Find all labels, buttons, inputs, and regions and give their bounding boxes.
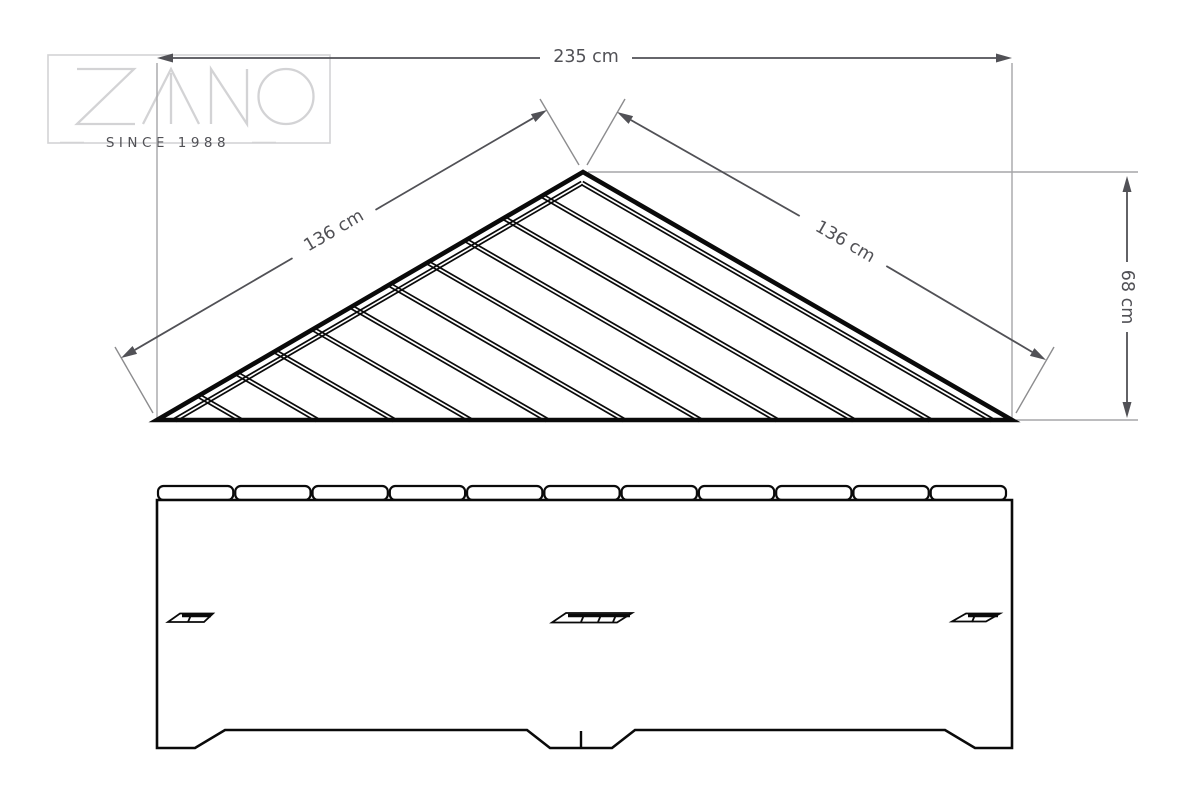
seat-board-end bbox=[544, 486, 619, 500]
dimension-arrowhead bbox=[617, 112, 633, 124]
front-panel-outline bbox=[157, 500, 1012, 748]
dimension-top-width-label: 235 cm bbox=[553, 47, 619, 67]
seat-board-end bbox=[776, 486, 851, 500]
logo-letter bbox=[77, 69, 135, 124]
dimension-arrowhead bbox=[1030, 348, 1046, 360]
dimension-arrowhead bbox=[996, 54, 1012, 63]
seat-board-end bbox=[158, 486, 233, 500]
zano-logo-tagline: SINCE 1988 bbox=[106, 135, 230, 151]
top-view bbox=[157, 172, 1012, 421]
technical-drawing-page: ZANO SINCE 1988 235 cm 136 cm 136 cm 68 … bbox=[0, 0, 1200, 800]
dimension-left-edge-label: 136 cm bbox=[301, 206, 368, 256]
seat-board-end bbox=[622, 486, 697, 500]
dimension-right-edge-label: 136 cm bbox=[812, 217, 879, 267]
seat-board-end bbox=[313, 486, 388, 500]
dimension-arrowhead bbox=[121, 346, 137, 358]
seat-board-end bbox=[853, 486, 928, 500]
dimension-depth-label: 68 cm bbox=[1117, 270, 1137, 325]
logo-letter-o bbox=[259, 69, 314, 124]
dim-136r-line bbox=[631, 120, 800, 216]
dim-136r-line bbox=[886, 266, 1032, 352]
dimension-arrowhead bbox=[531, 110, 547, 122]
dim-136l-line bbox=[135, 258, 293, 350]
seat-board-end bbox=[467, 486, 542, 500]
seat-board-end bbox=[390, 486, 465, 500]
dimension-arrowhead bbox=[1123, 176, 1132, 192]
seat-board-end bbox=[699, 486, 774, 500]
ext-corner-bl bbox=[115, 347, 153, 413]
triangle-face bbox=[157, 172, 1012, 420]
dim-136l-line bbox=[375, 118, 533, 210]
ext-apex-right bbox=[587, 99, 625, 165]
dimension-arrowhead bbox=[1123, 402, 1132, 418]
ext-apex-left bbox=[540, 99, 579, 165]
logo-letter bbox=[211, 69, 247, 124]
seat-board-end bbox=[235, 486, 310, 500]
drawing-canvas: ZANO SINCE 1988 235 cm 136 cm 136 cm 68 … bbox=[0, 0, 1200, 800]
front-view bbox=[157, 486, 1012, 748]
zano-logo: ZANO bbox=[48, 55, 330, 143]
seat-board-end bbox=[931, 486, 1006, 500]
